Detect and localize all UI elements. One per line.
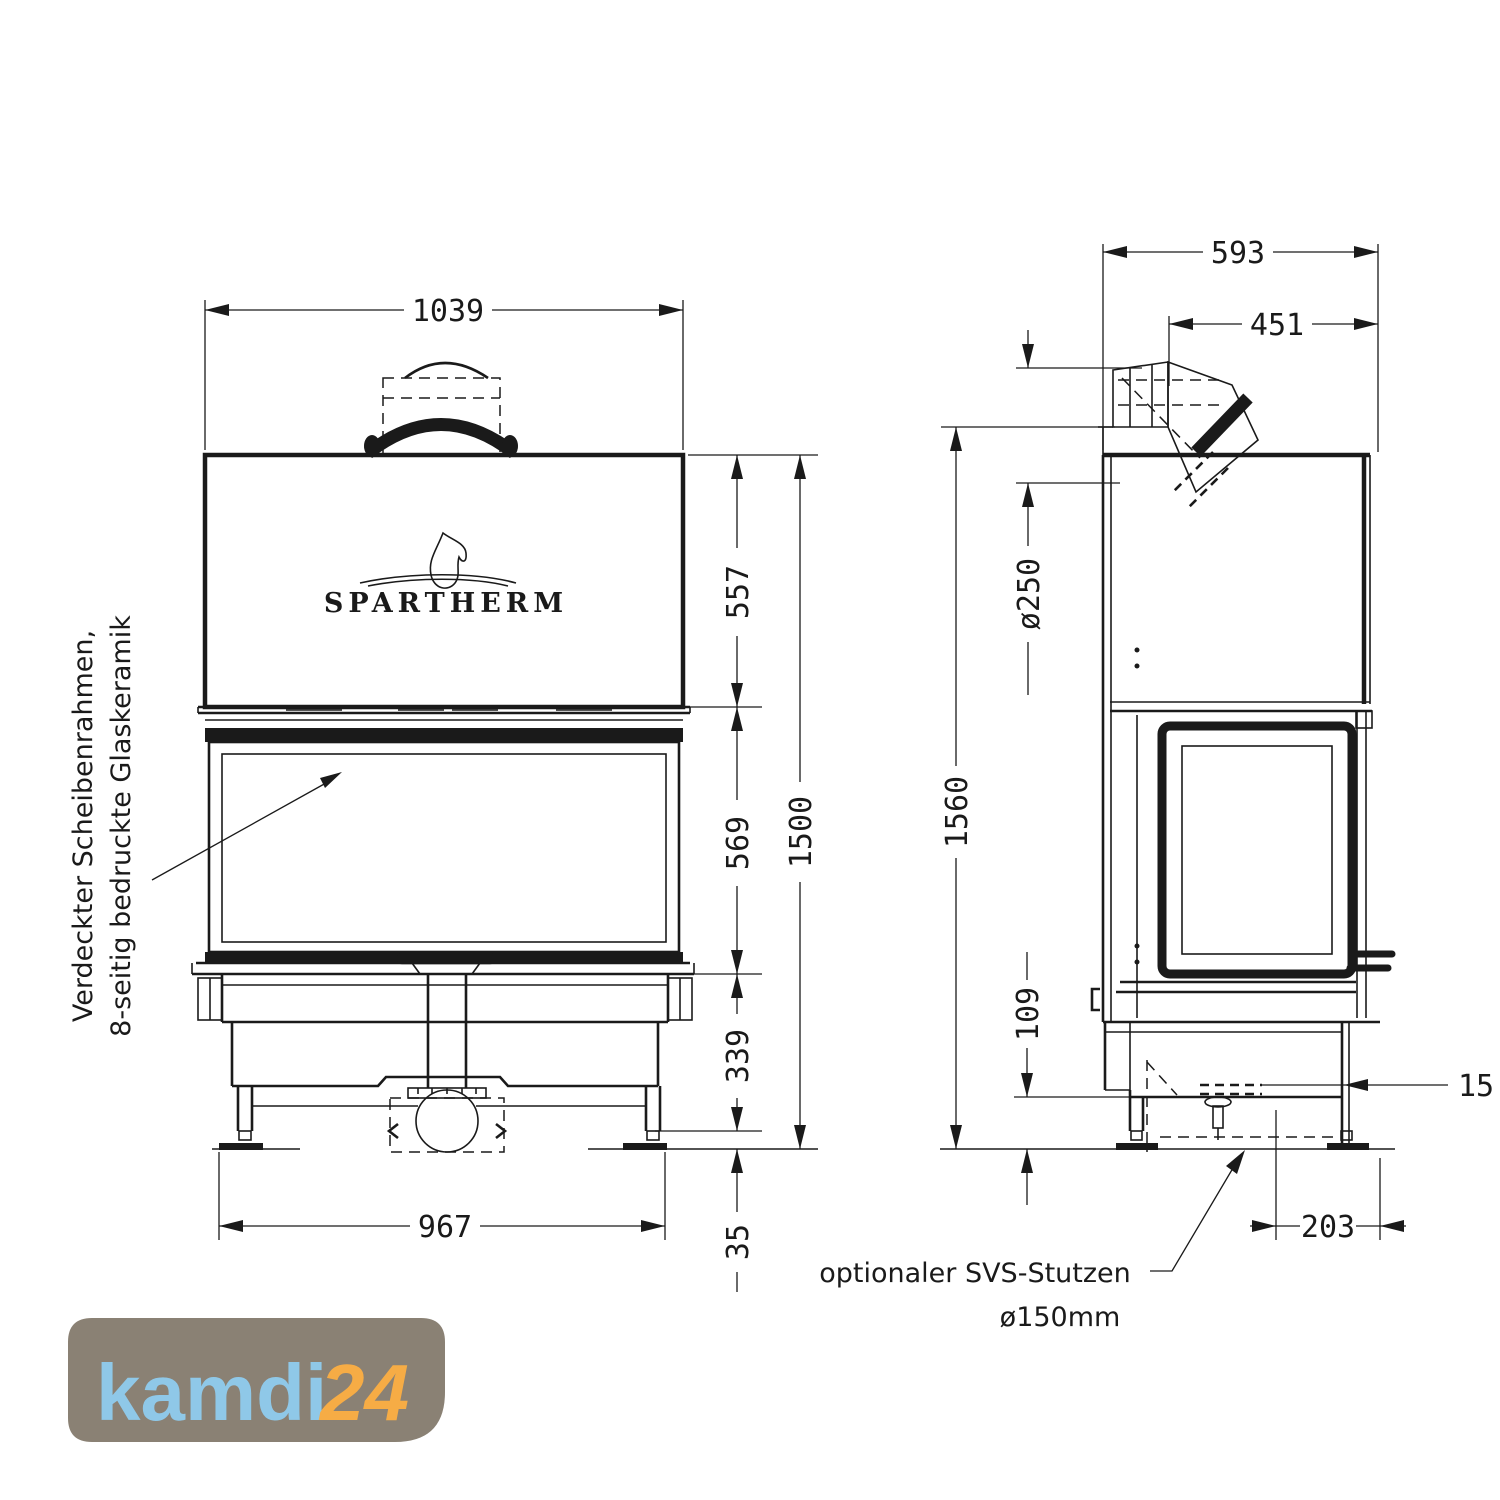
dim-451-label: 451 <box>1250 308 1304 343</box>
dim-door-height: 569 <box>688 707 762 974</box>
logo-number-text: 24 <box>318 1348 409 1437</box>
dim-967-label: 967 <box>418 1210 472 1245</box>
side-flue-elbow <box>1098 362 1258 508</box>
side-body <box>940 455 1395 1152</box>
dim-203-label: 203 <box>1301 1210 1355 1245</box>
dim-1560-label: 1560 <box>940 776 975 848</box>
dim-feet-height: 35 <box>721 1149 756 1292</box>
dim-1039-label: 1039 <box>412 294 484 329</box>
dim-flue-diameter: ø250 <box>1012 330 1142 695</box>
spartherm-logo: SPARTHERM <box>324 533 568 619</box>
svs-note-line1: optionaler SVS-Stutzen <box>819 1258 1131 1289</box>
svs-note-line2: ø150mm <box>1000 1302 1121 1333</box>
svs-annotation: optionaler SVS-Stutzen ø150mm <box>819 1150 1245 1333</box>
annotation-line2: 8-seitig bedruckte Glaskeramik <box>106 615 137 1037</box>
front-hood <box>205 455 683 707</box>
front-ledge <box>198 707 690 713</box>
dim-35-label: 35 <box>721 1224 756 1260</box>
kamdi24-logo: kamdi 24 <box>68 1318 445 1442</box>
dim-panel-thickness: 15 <box>1262 1069 1494 1104</box>
brand-text: SPARTHERM <box>324 588 568 619</box>
dim-hood-height: 557 <box>688 455 818 707</box>
dim-1500-label: 1500 <box>784 796 819 868</box>
dim-109-label: 109 <box>1011 987 1046 1041</box>
dim-depth-total: 593 <box>1103 236 1378 452</box>
dim-base-height: 339 <box>655 974 762 1131</box>
dim-569-label: 569 <box>721 816 756 870</box>
dim-593-label: 593 <box>1211 236 1265 271</box>
dim-svs-offset: 203 <box>1250 1110 1406 1245</box>
dim-339-label: 339 <box>721 1029 756 1083</box>
side-view: 593 451 ø250 1560 <box>819 236 1494 1333</box>
technical-drawing-page: SPARTHERM <box>0 0 1500 1500</box>
dim-15-label: 15 <box>1458 1069 1494 1104</box>
annotation-line1: Verdeckter Scheibenrahmen, <box>68 630 99 1022</box>
svs-circle-front <box>416 1090 478 1152</box>
front-door <box>205 720 683 962</box>
fireplace-dimension-drawing: SPARTHERM <box>0 0 1500 1500</box>
dim-557-label: 557 <box>721 565 756 619</box>
logo-name-text: kamdi <box>96 1348 327 1437</box>
front-flue-collar <box>364 363 518 457</box>
side-door-frame <box>1162 726 1352 974</box>
dim-250-label: ø250 <box>1012 558 1047 630</box>
front-view: SPARTHERM <box>68 294 819 1292</box>
dim-width-bottom: 967 <box>219 1152 665 1245</box>
dim-total-height: 1500 <box>784 455 819 1149</box>
dim-base-clearance: 109 <box>1011 952 1130 1205</box>
